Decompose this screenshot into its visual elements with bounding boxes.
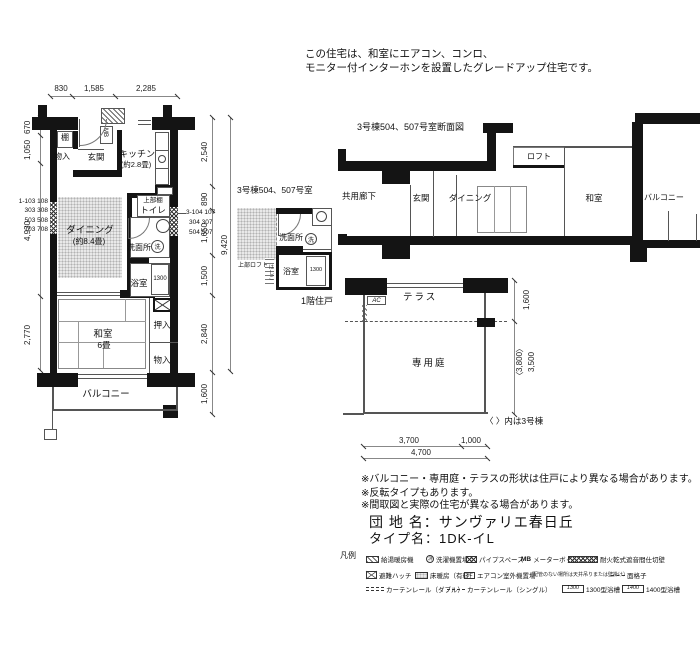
room-label-dining-size: (約8.4畳) bbox=[73, 238, 105, 246]
type-name: タイプ名：1DK-イL bbox=[369, 532, 495, 545]
floor-plan-sheet: この住宅は、和室にエアコン、コンロ、 モニター付インターホンを設置したグレードア… bbox=[0, 0, 700, 650]
unit-numbers-right: 504 507 bbox=[189, 230, 213, 237]
tatami-line bbox=[125, 299, 126, 321]
section-partition bbox=[410, 185, 411, 236]
dim-1600: 1,600 bbox=[523, 281, 535, 319]
boiler-icon bbox=[366, 556, 379, 563]
note-line: ※反転タイプもあります。 bbox=[361, 489, 478, 499]
counter-line bbox=[155, 168, 169, 169]
section-partition bbox=[564, 147, 565, 236]
balcony-wall bbox=[176, 387, 178, 409]
ac-label: AC bbox=[372, 298, 380, 304]
tub1300-icon: 1300 bbox=[562, 585, 584, 593]
legend-item-tub1300: 1300 1300型浴槽 bbox=[562, 584, 620, 594]
washer-symbol-label: 洗 bbox=[154, 242, 160, 251]
floor-heating-icon bbox=[415, 572, 428, 579]
section-slab bbox=[343, 161, 496, 171]
room-label-upper-shelf: 上部棚 bbox=[143, 198, 163, 205]
section-label-loft: ロフト bbox=[527, 153, 551, 161]
wall bbox=[147, 373, 195, 387]
door-panel-line bbox=[510, 186, 511, 233]
balcony-rail bbox=[668, 211, 669, 241]
balcony-wall bbox=[52, 387, 54, 409]
section-title: 3号棟504、507号室断面図 bbox=[357, 123, 464, 132]
unit-numbers-left: 1-103 108 bbox=[18, 199, 48, 206]
legend-item-boiler: 給湯暖房機 bbox=[366, 554, 414, 564]
washer-symbol: 洗 bbox=[305, 233, 317, 245]
section-label-entrance: 玄関 bbox=[412, 194, 429, 203]
section-label-balcony: バルコニー bbox=[644, 194, 684, 202]
window bbox=[387, 283, 463, 284]
washer-symbol: 洗 bbox=[151, 240, 164, 253]
sliding-door bbox=[57, 295, 120, 296]
tatami-line bbox=[78, 321, 79, 368]
wall bbox=[73, 170, 117, 177]
dim-left-1050: 1,050 bbox=[24, 131, 36, 169]
legend-label: 面格子 bbox=[627, 570, 647, 580]
legend-label: カーテンレール（シングル） bbox=[467, 584, 552, 594]
loft-floor bbox=[513, 165, 565, 168]
wall bbox=[170, 130, 178, 373]
wall bbox=[73, 131, 78, 149]
drain-box bbox=[44, 429, 57, 440]
room-label-dining: ダイニング bbox=[66, 226, 114, 236]
garden-edge bbox=[363, 412, 488, 414]
legend-label: 1400型浴槽 bbox=[646, 584, 680, 594]
dim-line bbox=[230, 117, 231, 372]
section-label-corridor: 共用廊下 bbox=[342, 192, 376, 201]
section-label-dining: ダイニング bbox=[449, 194, 492, 203]
wall bbox=[152, 117, 195, 130]
wall bbox=[37, 373, 78, 387]
kitchen-sink bbox=[157, 187, 173, 195]
dim-3500: 3,500 bbox=[528, 343, 540, 381]
room-label-shelf: 棚 bbox=[61, 134, 69, 142]
loft-label: 上部ロフト bbox=[238, 263, 268, 269]
bathtub-size-label: 1300 bbox=[153, 276, 166, 282]
window bbox=[78, 378, 147, 379]
legend-item-ac: AC エアコン室外機置場 bbox=[464, 570, 536, 580]
dim-1000: 1,000 bbox=[461, 437, 481, 445]
window bbox=[78, 374, 147, 375]
closet-line bbox=[149, 298, 150, 373]
toilet-circle bbox=[316, 211, 327, 222]
small-plan-bath: 浴室 bbox=[283, 268, 299, 276]
section-partition bbox=[433, 171, 434, 237]
escape-hatch-icon bbox=[366, 571, 377, 579]
unit-numbers-left: 703 708 bbox=[18, 227, 48, 234]
room-label-washroom: 洗面所 bbox=[127, 244, 151, 252]
window bbox=[387, 287, 463, 288]
ac-icon: AC bbox=[464, 572, 475, 579]
garden-edge bbox=[343, 413, 364, 415]
dim-line bbox=[514, 280, 515, 415]
section-wall bbox=[632, 122, 643, 243]
section-beam bbox=[382, 245, 410, 259]
room-label-kitchen: キッチン bbox=[119, 150, 155, 159]
firewall-symbol bbox=[50, 202, 57, 234]
room-label-bath: 浴室 bbox=[130, 279, 147, 288]
wall bbox=[32, 117, 78, 130]
section-slab bbox=[483, 123, 513, 133]
legend-item-hatch: 避難ハッチ bbox=[366, 570, 412, 580]
legend-title: 凡例 bbox=[340, 552, 356, 560]
note-line: ※バルコニー・専用庭・テラスの形状は住戸により異なる場合があります。 bbox=[361, 475, 698, 485]
room-label-washitsu-size: 6畳 bbox=[97, 341, 110, 350]
garden-label: 専用庭 bbox=[412, 359, 447, 369]
terrace-label: テラス bbox=[403, 293, 437, 303]
unit-numbers-right: 3-104 107 bbox=[186, 210, 215, 217]
dim-3700: 3,700 bbox=[399, 437, 419, 445]
mb-icon: MB bbox=[521, 556, 531, 563]
leader-line bbox=[178, 213, 186, 214]
legend-item-pipe: パイプスペース bbox=[466, 554, 524, 564]
legend-item-grille: 面格子 bbox=[611, 570, 647, 580]
section-label-washitsu: 和室 bbox=[585, 194, 602, 203]
room-label-balcony: バルコニー bbox=[82, 390, 129, 400]
wall bbox=[463, 278, 508, 293]
room-label-entrance: 玄関 bbox=[87, 153, 104, 162]
pipe-space-icon bbox=[466, 556, 477, 563]
dim-line bbox=[40, 117, 41, 371]
unit-numbers-left: 503 508 bbox=[18, 218, 48, 225]
tub1400-icon: 1400 bbox=[622, 585, 644, 593]
legend-item-washer: 洗 洗濯機置場 bbox=[426, 554, 469, 564]
legend-label: パイプスペース bbox=[479, 554, 524, 564]
wall bbox=[477, 318, 495, 327]
legend-label: 洗濯機置場 bbox=[436, 554, 469, 564]
counter-line bbox=[155, 150, 169, 151]
note-line: ※間取図と実際の住宅が異なる場合があります。 bbox=[361, 501, 578, 511]
bathtub-size-label: 1300 bbox=[310, 268, 322, 274]
dim-top-830: 830 bbox=[54, 85, 67, 93]
sink-circle bbox=[158, 155, 166, 163]
legend-label: 1300型浴槽 bbox=[586, 584, 620, 594]
legend-item-tub1400: 1400 1400型浴槽 bbox=[622, 584, 680, 594]
room-label-washitsu: 和室 bbox=[93, 330, 112, 340]
legend-label: 耐火乾式遮音間仕切壁 bbox=[600, 554, 665, 564]
legend-label: エアコン室外機置場 bbox=[477, 570, 536, 580]
section-floor bbox=[343, 236, 637, 245]
wall-line bbox=[303, 249, 332, 250]
small-plan-title: 3号棟504、507号室 bbox=[237, 186, 313, 195]
tatami-line bbox=[58, 321, 146, 322]
dim-line bbox=[363, 458, 487, 459]
window bbox=[138, 120, 151, 121]
dim-left-2770: 2,770 bbox=[24, 316, 36, 354]
wall bbox=[50, 130, 57, 373]
header-note-line2: モニター付インターホンを設置したグレードアップ住宅です。 bbox=[305, 63, 598, 74]
unit-numbers-left: 303 308 bbox=[18, 208, 48, 215]
hatch-x-icon bbox=[155, 300, 170, 310]
dim-top-2285: 2,285 bbox=[136, 85, 156, 93]
dim-line bbox=[363, 446, 487, 447]
room-label-toilet: トイレ bbox=[140, 206, 166, 215]
legend-label: 避難ハッチ bbox=[379, 570, 412, 580]
room-label-oshiire: 押入 bbox=[153, 321, 170, 330]
firewall-icon bbox=[568, 556, 598, 563]
window bbox=[138, 124, 151, 125]
bracket-note: 〈 〉内は3号棟 bbox=[485, 417, 543, 426]
dim-line bbox=[212, 117, 213, 415]
door-panel-line bbox=[494, 186, 495, 233]
section-partition bbox=[456, 175, 457, 236]
curtain-double-icon bbox=[366, 587, 384, 591]
ac-outdoor-unit: AC bbox=[367, 296, 386, 305]
basin-circle bbox=[156, 219, 170, 233]
small-plan-washroom: 洗面所 bbox=[279, 234, 303, 242]
room-label-storage: 物入 bbox=[54, 153, 70, 161]
drain-pipe bbox=[52, 411, 53, 429]
loft-shaded-area bbox=[237, 208, 277, 260]
firewall-symbol bbox=[170, 207, 178, 236]
estate-name: 団 地 名：サンヴァリエ春日丘 bbox=[369, 515, 574, 529]
curtain-single-icon bbox=[447, 589, 465, 590]
section-roof bbox=[635, 113, 700, 124]
section-wall bbox=[487, 133, 496, 171]
garden-fence bbox=[484, 293, 486, 413]
unit-numbers-right: 304 307 bbox=[189, 220, 213, 227]
balcony-edge bbox=[52, 409, 178, 411]
closet-line bbox=[149, 342, 178, 343]
dim-total-9420: 9,420 bbox=[221, 226, 233, 264]
legend-label: 給湯暖房機 bbox=[381, 554, 414, 564]
wall-line bbox=[331, 208, 332, 252]
garden-fence bbox=[363, 295, 365, 413]
floor-note: 1階住戸 bbox=[301, 297, 333, 306]
entrance-step bbox=[78, 149, 104, 150]
dim-top-1585: 1,585 bbox=[84, 85, 104, 93]
dim-4700: 4,700 bbox=[411, 449, 431, 457]
balcony-rail bbox=[696, 214, 697, 241]
grille-icon bbox=[611, 575, 625, 576]
section-beam bbox=[382, 171, 410, 184]
sliding-door bbox=[57, 292, 120, 293]
washer-symbol-label: 洗 bbox=[308, 235, 314, 244]
legend-item-curtain-single: カーテンレール（シングル） bbox=[447, 584, 552, 594]
header-note-line1: この住宅は、和室にエアコン、コンロ、 bbox=[305, 49, 493, 60]
wall bbox=[345, 278, 387, 295]
balcony-floor bbox=[637, 240, 700, 248]
legend-item-firewall: 耐火乾式遮音間仕切壁 bbox=[568, 554, 665, 564]
washer-icon: 洗 bbox=[426, 555, 434, 563]
room-label-kitchen-size: (約2.8畳) bbox=[121, 161, 151, 169]
room-label-storage2: 物入 bbox=[153, 356, 170, 365]
